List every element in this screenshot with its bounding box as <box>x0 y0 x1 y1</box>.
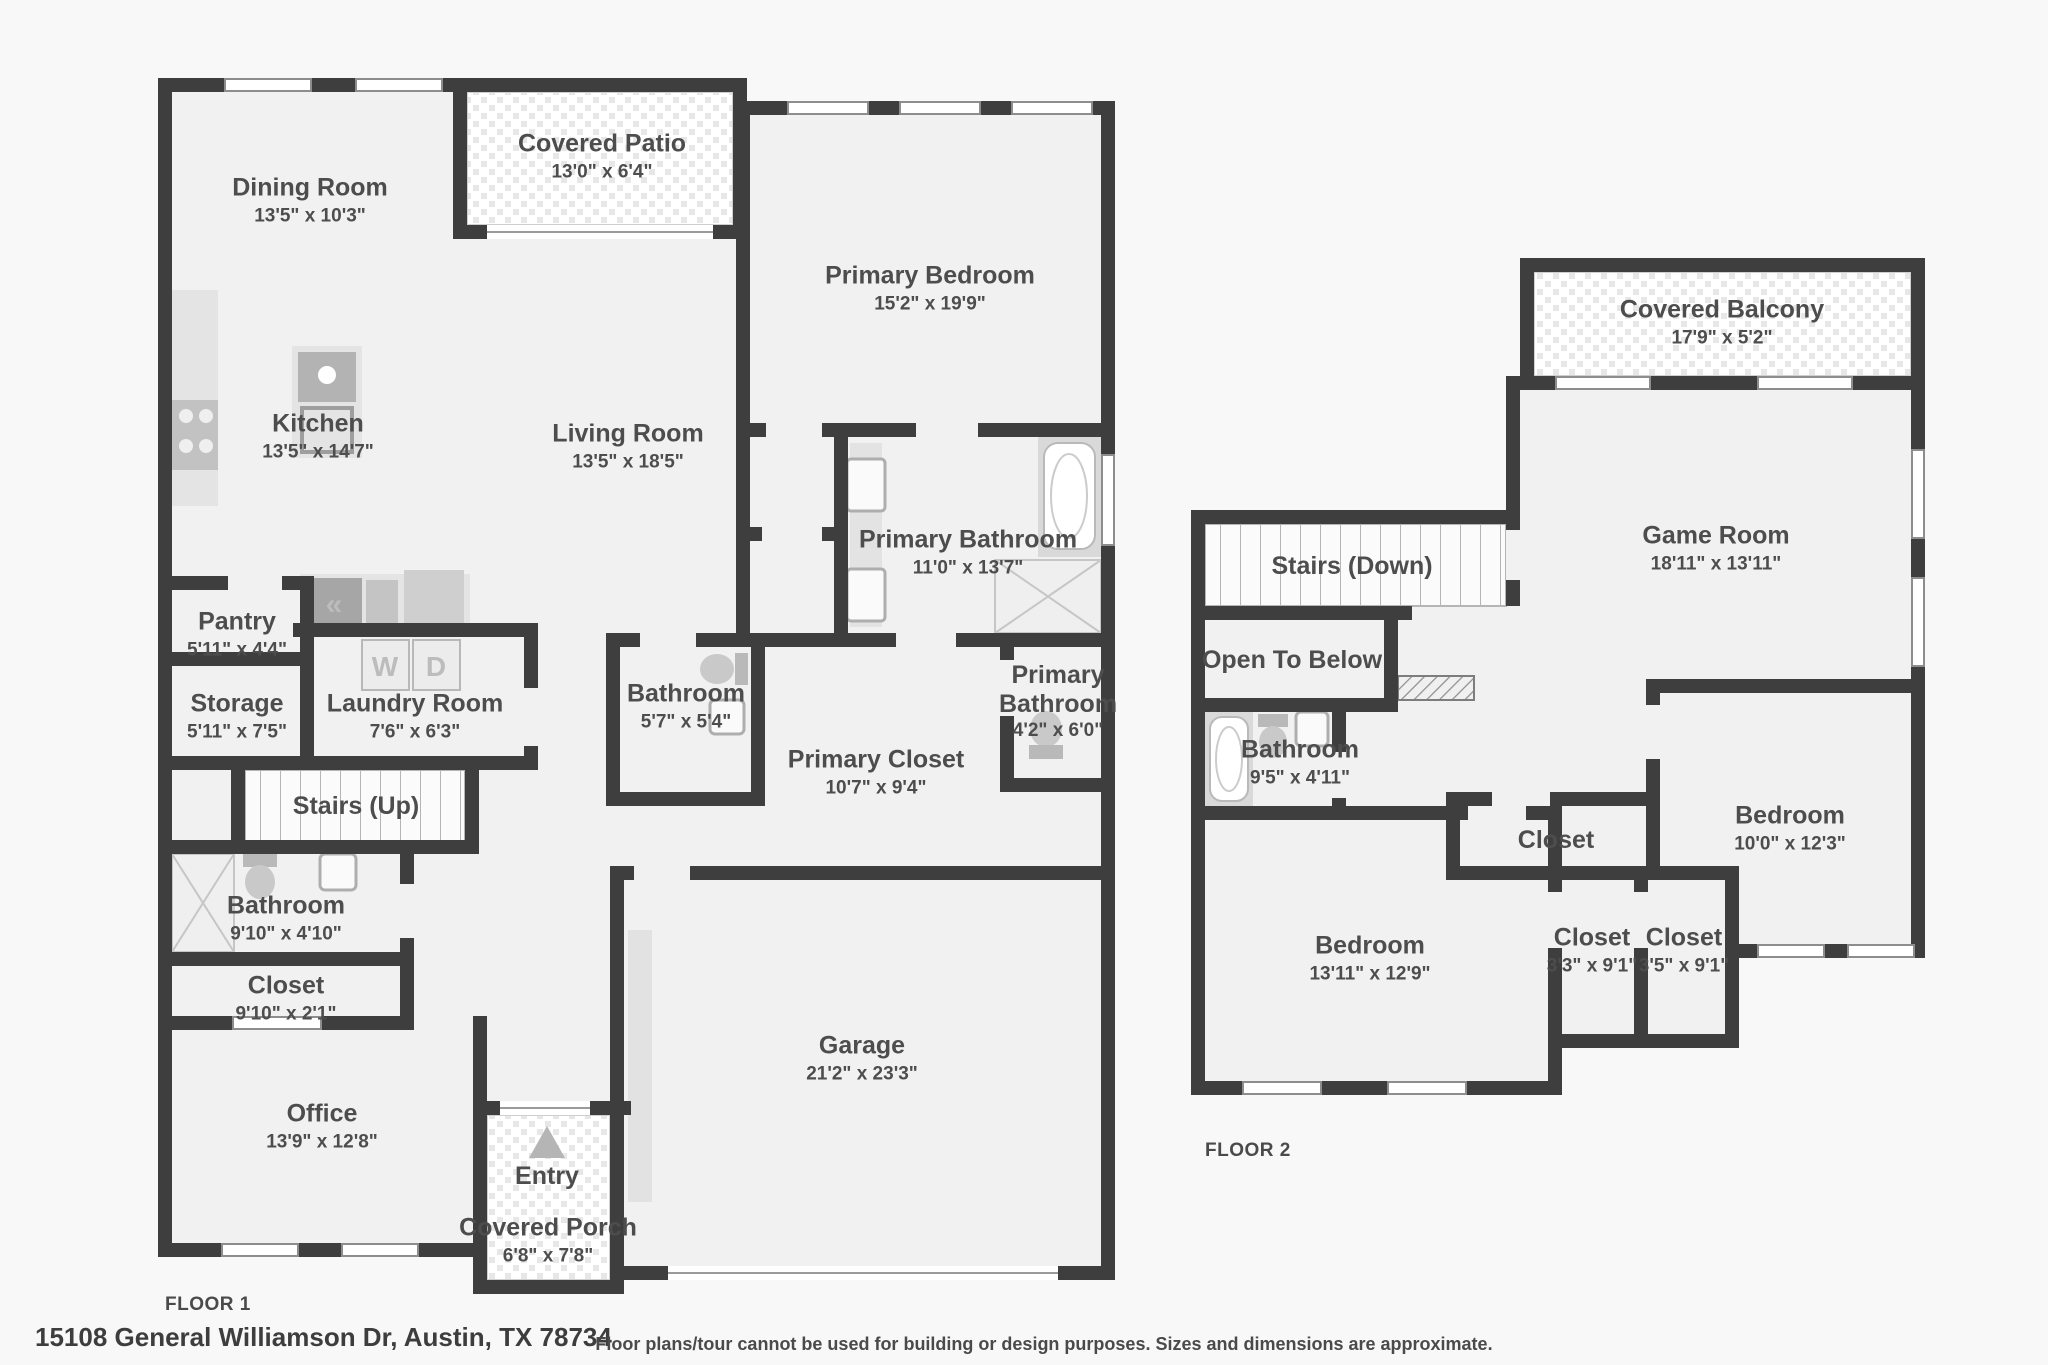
room-label-covered-patio: Covered Patio13'0" x 6'4" <box>518 127 686 184</box>
room-label-water-closet: Primary Bathroom4'2" x 6'0" <box>999 661 1117 743</box>
svg-text:D: D <box>426 651 446 682</box>
room-label-covered-balcony: Covered Balcony17'9" x 5'2" <box>1620 293 1824 350</box>
floor-plan-page: « W D <box>0 0 2048 1365</box>
svg-text:W: W <box>372 651 399 682</box>
open-to-below-hatch <box>1398 676 1474 700</box>
room-label-primary-bathroom: Primary Bathroom11'0" x 13'7" <box>859 523 1077 580</box>
room-label-closet-35: Closet3'5" x 9'1" <box>1639 921 1729 978</box>
sink-icon <box>320 854 356 890</box>
room-label-garage: Garage21'2" x 23'3" <box>806 1029 918 1086</box>
room-label-stairs-down: Stairs (Down) <box>1271 550 1432 583</box>
floor2-tag: FLOOR 2 <box>1205 1140 1291 1162</box>
fridge-icon <box>404 570 464 630</box>
room-label-closet-33: Closet3'3" x 9'1" <box>1547 921 1637 978</box>
room-label-open-to-below: Open To Below <box>1202 644 1382 677</box>
room-label-office: Office13'9" x 12'8" <box>266 1097 378 1154</box>
cooktop-icon <box>172 400 218 470</box>
room-label-laundry-room: Laundry Room7'6" x 6'3" <box>327 687 503 744</box>
room-label-dining-room: Dining Room13'5" x 10'3" <box>232 171 388 228</box>
room-label-downstairs-bathroom: Bathroom9'10" x 4'10" <box>227 889 345 946</box>
room-label-entry: Entry <box>515 1160 579 1193</box>
oven-glyph: « <box>326 588 343 621</box>
room-label-covered-porch: Covered Porch6'8" x 7'8" <box>459 1211 637 1268</box>
room-label-primary-bedroom: Primary Bedroom15'2" x 19'9" <box>825 259 1035 316</box>
room-label-hall-bathroom: Bathroom5'7" x 5'4" <box>627 677 745 734</box>
disclaimer-text: Floor plans/tour cannot be used for buil… <box>595 1334 1492 1355</box>
room-label-downstairs-closet: Closet9'10" x 2'1" <box>235 969 336 1026</box>
room-label-floor2-bathroom: Bathroom9'5" x 4'11" <box>1241 733 1359 790</box>
room-label-bedroom-right: Bedroom10'0" x 12'3" <box>1734 799 1846 856</box>
room-label-game-room: Game Room18'11" x 13'11" <box>1642 519 1789 576</box>
room-label-stairs-up: Stairs (Up) <box>293 790 419 823</box>
room-label-living-room: Living Room13'5" x 18'5" <box>552 417 703 474</box>
room-label-pantry: Pantry5'11" x 4'4" <box>187 605 287 662</box>
room-label-bedroom-left: Bedroom13'11" x 12'9" <box>1309 929 1430 986</box>
room-label-storage: Storage5'11" x 7'5" <box>187 687 287 744</box>
toilet-tank-icon <box>1258 714 1288 727</box>
garage-step <box>628 930 652 1202</box>
room-label-kitchen: Kitchen13'5" x 14'7" <box>262 407 374 464</box>
floor1-tag: FLOOR 1 <box>165 1294 251 1316</box>
room-label-floor2-closet: Closet <box>1518 824 1594 857</box>
property-address: 15108 General Williamson Dr, Austin, TX … <box>35 1322 612 1353</box>
toilet-tank-icon <box>1029 745 1063 759</box>
room-label-primary-closet: Primary Closet10'7" x 9'4" <box>788 743 964 800</box>
sink-icon <box>847 459 885 511</box>
